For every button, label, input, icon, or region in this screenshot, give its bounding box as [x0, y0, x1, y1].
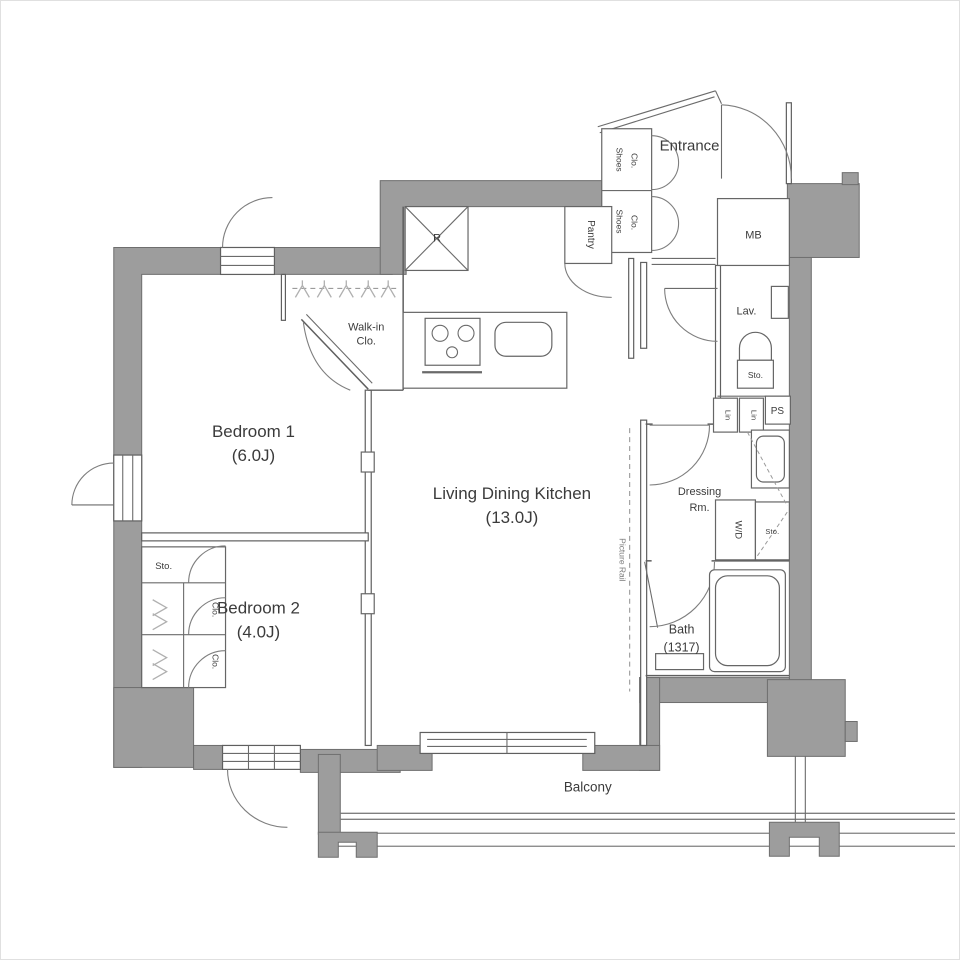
kitchen-sink	[495, 322, 552, 356]
ldk-label: Living Dining Kitchen	[433, 484, 591, 503]
bedroom2-size: (4.0J)	[237, 623, 280, 642]
wall-bedroom-divider	[142, 533, 369, 541]
lav-label: Lav.	[736, 305, 756, 317]
column-top-right-tab	[842, 173, 858, 185]
toilet-bowl	[739, 332, 771, 360]
walkin-label-1: Walk-in	[348, 321, 384, 333]
floorplan-image: Bedroom 1 (6.0J) Bedroom 2 (4.0J) Living…	[0, 0, 960, 960]
wall-walkin-left	[281, 274, 285, 320]
dressing-washbasin-bowl	[756, 436, 784, 482]
pantry-label: Pantry	[585, 220, 596, 249]
wall-right	[789, 257, 811, 683]
bath-label: Bath	[669, 623, 695, 637]
bedroom2-label: Bedroom 2	[217, 599, 300, 618]
balcony-label: Balcony	[564, 779, 612, 794]
bedroom1-size: (6.0J)	[232, 446, 275, 465]
shoes-closet-1-label-2: Clo.	[630, 153, 640, 168]
bath-size: (1317)	[664, 641, 700, 655]
shoes-closet-1-label-1: Shoes	[615, 148, 625, 172]
lav-basin	[771, 286, 788, 318]
bathtub-inner	[716, 576, 780, 666]
column-top-right	[787, 184, 859, 258]
floorplan-svg: Bedroom 1 (6.0J) Bedroom 2 (4.0J) Living…	[1, 1, 959, 959]
lin-label-1: Lin	[723, 410, 732, 421]
mb-label: MB	[745, 230, 761, 242]
wall-bottom-left-block	[114, 688, 194, 768]
lav-storage-label: Sto.	[748, 370, 763, 380]
wall-lav-left	[716, 265, 721, 398]
shoes-closet-2-label-2: Clo.	[630, 215, 640, 230]
bath-step	[656, 654, 704, 670]
wall-bottom-seg-1	[194, 745, 223, 769]
wall-balcony-left	[318, 754, 340, 834]
lin-label-2: Lin	[749, 410, 758, 421]
picture-rail-label: Picture Rail	[618, 538, 628, 581]
wall-bedroom-right	[365, 390, 371, 745]
clo-upper-label: Clo.	[211, 602, 221, 617]
entrance-label: Entrance	[660, 138, 720, 155]
ps-label: PS	[771, 406, 785, 417]
fridge-label: R	[433, 232, 441, 244]
bedroom1-left-window	[114, 455, 142, 521]
wall-corridor-upper	[641, 262, 647, 348]
wall-mark-2	[361, 594, 374, 614]
bedroom2-balcony-window	[223, 745, 301, 769]
column-bottom-right	[767, 680, 845, 757]
ldk-size: (13.0J)	[486, 508, 539, 527]
shoes-closet-2-label-1: Shoes	[615, 210, 625, 234]
wall-mark-1	[361, 452, 374, 472]
dressing-label-1: Dressing	[678, 486, 721, 498]
column-bottom-right-tab	[845, 721, 857, 741]
dressing-storage-label: Sto.	[765, 527, 779, 536]
wall-corridor-lower	[641, 420, 647, 745]
bedroom1-label: Bedroom 1	[212, 422, 295, 441]
dressing-label-2: Rm.	[689, 502, 709, 514]
clo-lower-label: Clo.	[211, 654, 221, 669]
wd-label: W/D	[732, 521, 743, 540]
ldk-sliding-door-panel	[629, 258, 634, 358]
bedroom1-top-window	[221, 247, 275, 274]
walkin-label-2: Clo.	[356, 335, 376, 347]
bedroom2-storage-label: Sto.	[155, 561, 172, 572]
background	[1, 1, 959, 959]
